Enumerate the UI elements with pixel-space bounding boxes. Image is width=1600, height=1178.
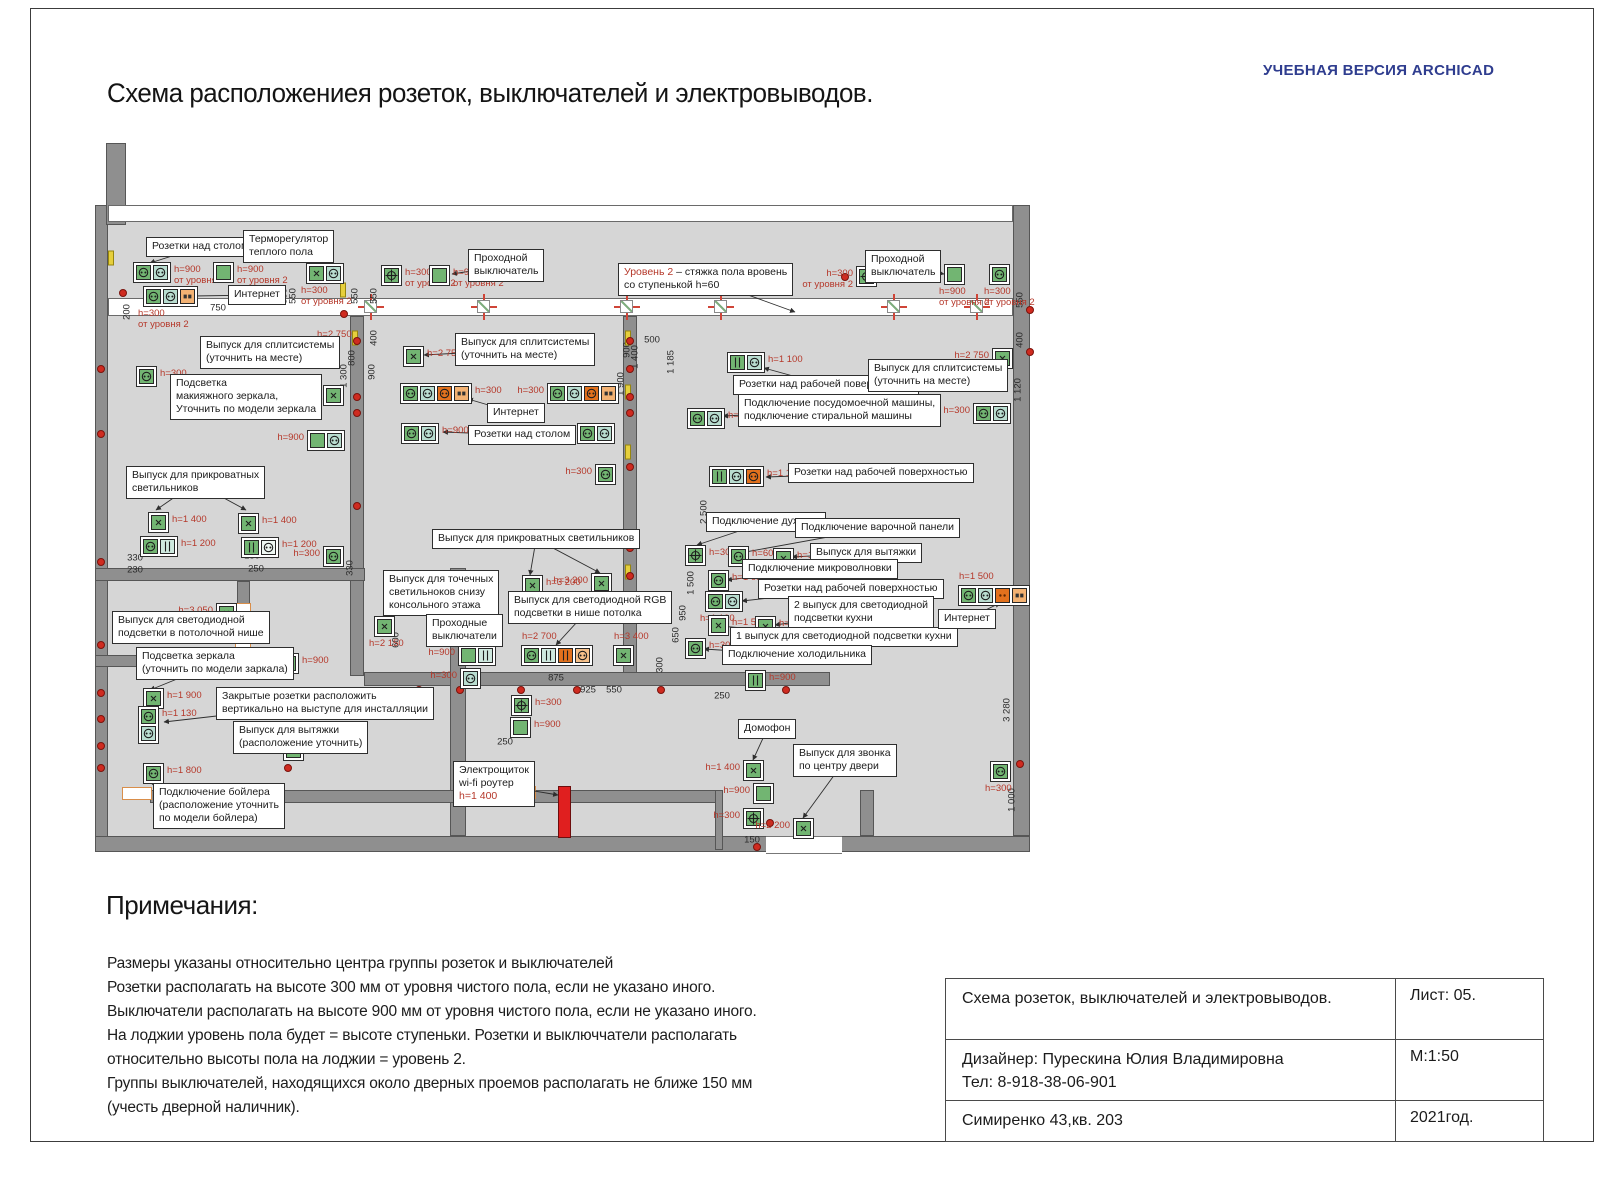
- height-label: h=300от уровня 2: [301, 286, 352, 308]
- height-label: h=900от уровня 2: [237, 265, 288, 287]
- height-label: h=2 150: [369, 639, 404, 650]
- cable-tick: [108, 251, 114, 266]
- switch2-symbol: [730, 355, 745, 370]
- socket-group: h=300: [973, 403, 1011, 424]
- dimension-text: 400: [369, 330, 380, 346]
- socket-symbol: [404, 426, 419, 441]
- socket2-symbol: [747, 355, 762, 370]
- dimension-text: 250: [714, 691, 730, 702]
- socket-group: h=300: [687, 408, 725, 429]
- dimension-text: 1 120: [1013, 378, 1024, 402]
- height-label: h=900: [302, 656, 329, 667]
- height-label: h=300от уровня 2: [802, 269, 853, 291]
- socket-symbol: [993, 764, 1008, 779]
- dimension-text: 500: [644, 335, 660, 346]
- junction-dot: [97, 742, 105, 750]
- socket-symbol: [146, 766, 161, 781]
- socket-group: h=300: [136, 366, 157, 387]
- height-label: h=900: [442, 426, 469, 437]
- out-symbol: [711, 618, 726, 633]
- junction-dot: [97, 715, 105, 723]
- socket-symbol: [143, 539, 158, 554]
- socket2-symbol: [978, 588, 993, 603]
- junction-dot: [626, 337, 634, 345]
- out-symbol: [616, 648, 631, 663]
- socket-w-symbol: [261, 540, 276, 555]
- socket-group: h=1 100: [727, 352, 765, 373]
- socket-group: h=1 200: [140, 536, 178, 557]
- socket2-symbol: [421, 426, 436, 441]
- junction-dot: [97, 641, 105, 649]
- socket-group: h=900от уровня 2: [213, 262, 234, 283]
- height-label: h=900: [534, 720, 561, 731]
- dimension-text: 1 500: [686, 571, 697, 595]
- socket-group: h=300: [595, 464, 616, 485]
- dimension-text: 550: [606, 685, 622, 696]
- socket2-symbol: [326, 266, 341, 281]
- dimension-text: 200: [122, 304, 133, 320]
- switch-symbol: [432, 268, 447, 283]
- callout-label: Подключение варочной панели: [795, 518, 960, 538]
- callout-label: Выпуск для вытяжки(расположение уточнить…: [233, 721, 368, 754]
- dimension-text: 900: [367, 364, 378, 380]
- socket-group: h=900от уровня 2: [429, 265, 450, 286]
- socket2-symbol: [567, 386, 582, 401]
- junction-dot: [97, 689, 105, 697]
- junction-dot: [517, 686, 525, 694]
- socket-group: h=300от уровня 2: [143, 286, 198, 307]
- socket-o-symbol: [746, 469, 761, 484]
- junction-symbol: [384, 268, 399, 283]
- socket-group: h=2 750: [403, 346, 424, 367]
- callout-label: Розетки над столом: [468, 425, 576, 445]
- net-symbol: [601, 386, 616, 401]
- switch2-symbol: [244, 540, 259, 555]
- socket-group: h=3 400: [613, 645, 634, 666]
- socket2-symbol: [420, 386, 435, 401]
- height-label: h=900: [277, 433, 304, 444]
- callout-label: Интернет: [228, 285, 286, 305]
- net-o-symbol: [995, 588, 1010, 603]
- net-symbol: [1012, 588, 1027, 603]
- height-label: h=300: [985, 784, 1012, 795]
- socket-group: h=300от уровня 2: [381, 265, 402, 286]
- junction-dot: [353, 409, 361, 417]
- height-label: h=1 400: [172, 515, 207, 526]
- junction-dot: [1026, 348, 1034, 356]
- out-symbol: [146, 691, 161, 706]
- junction-symbol: [514, 698, 529, 713]
- callout-label: Подсветкамакияжного зеркала,Уточнить по …: [170, 374, 322, 420]
- socket-o-symbol: [437, 386, 452, 401]
- socket-group: h=1 130: [138, 706, 159, 744]
- dimension-text: 230: [127, 565, 143, 576]
- socket-group: h=1 200: [241, 537, 279, 558]
- dimension-text: 250: [248, 564, 264, 575]
- callout-label: Электрощитокwi-fi роутерh=1 400: [453, 761, 535, 807]
- height-label: h=1 800: [167, 766, 202, 777]
- socket-group: h=900: [753, 783, 774, 804]
- net-symbol: [454, 386, 469, 401]
- dimension-text: 550: [369, 288, 380, 304]
- socket-symbol: [708, 594, 723, 609]
- switch-symbol: [947, 267, 962, 282]
- socket-group: h=1 800: [143, 763, 164, 784]
- socket-group: h=900: [401, 423, 439, 444]
- height-label: h=1 400: [705, 763, 740, 774]
- dimension-text: 400: [1015, 332, 1026, 348]
- height-label: h=1 200: [181, 539, 216, 550]
- socket-symbol: [550, 386, 565, 401]
- callout-label: Выпуск для прикроватных светильников: [432, 529, 640, 549]
- junction-dot: [97, 764, 105, 772]
- socket2-symbol: [725, 594, 740, 609]
- junction-dot: [782, 686, 790, 694]
- socket-symbol: [711, 573, 726, 588]
- dimension-text: 1 185: [666, 350, 677, 374]
- height-label: h=300: [293, 549, 320, 560]
- window-mark: [614, 294, 640, 320]
- junction-dot: [753, 843, 761, 851]
- socket-group: h=2 200: [793, 818, 814, 839]
- junction-dot: [626, 409, 634, 417]
- switch-symbol: [513, 720, 528, 735]
- junction-dot: [119, 289, 127, 297]
- switch-symbol: [461, 648, 476, 663]
- out-symbol: [746, 763, 761, 778]
- callout-label: Проходнойвыключатель: [468, 249, 544, 282]
- height-label: h=300от уровня 2: [984, 287, 1035, 309]
- height-label: h=3 200: [553, 576, 588, 587]
- junction-dot: [573, 686, 581, 694]
- height-label: h=3 400: [614, 632, 649, 643]
- callout-label: Выпуск для звонкапо центру двери: [793, 744, 897, 777]
- socket-symbol: [690, 411, 705, 426]
- callout-label: Интернет: [487, 403, 545, 423]
- socket-group: h=1 400: [148, 512, 169, 533]
- height-label: h=300от уровня 2: [138, 309, 189, 331]
- socket-group: h=900: [307, 430, 345, 451]
- height-label: h=2 700: [522, 632, 557, 643]
- height-label: h=300: [430, 671, 457, 682]
- callout-label: Розетки над рабочей поверхностью: [788, 463, 974, 483]
- callout-label: Выпуск для сплитсистемы(уточнить на мест…: [200, 336, 340, 369]
- socket-group: h=300от уровня 2: [306, 263, 344, 284]
- switch2-lt-symbol: [541, 648, 556, 663]
- height-label: h=300: [565, 467, 592, 478]
- socket-group: h=900от уровня 2: [133, 262, 171, 283]
- socket2-symbol: [597, 426, 612, 441]
- callout-label: 2 выпуск для светодиоднойподсветки кухни: [788, 596, 934, 629]
- dimension-text: 875: [548, 673, 564, 684]
- out-symbol: [594, 576, 609, 591]
- socket-o-lt-symbol: [575, 648, 590, 663]
- junction-dot: [1016, 760, 1024, 768]
- socket-group: h=300: [990, 761, 1011, 782]
- height-label: h=1 400: [262, 516, 297, 527]
- socket-symbol: [598, 467, 613, 482]
- callout-label: Проходныевыключатели: [426, 614, 503, 647]
- socket2-symbol: [463, 671, 478, 686]
- junction-dot: [353, 393, 361, 401]
- socket-group: h=900: [510, 717, 531, 738]
- switch-symbol: [216, 265, 231, 280]
- socket-symbol: [580, 426, 595, 441]
- socket-group: h=1 500: [958, 585, 1030, 606]
- junction-dot: [340, 310, 348, 318]
- out-symbol: [241, 516, 256, 531]
- socket-group: h=1 100: [705, 591, 743, 612]
- socket-group: h=900: [577, 423, 615, 444]
- socket-group: h=2 700: [521, 645, 593, 666]
- height-label: h=900: [769, 673, 796, 684]
- socket2-symbol: [993, 406, 1008, 421]
- socket-symbol: [961, 588, 976, 603]
- height-label: h=2 200: [755, 821, 790, 832]
- junction-dot: [626, 463, 634, 471]
- dimension-text: 650: [671, 627, 682, 643]
- switch2-lt-symbol: [160, 539, 175, 554]
- out-symbol: [406, 349, 421, 364]
- socket-symbol: [976, 406, 991, 421]
- socket2-symbol: [141, 726, 156, 741]
- height-label: h=900: [723, 786, 750, 797]
- net-symbol: [180, 289, 195, 304]
- out-symbol: [309, 266, 324, 281]
- socket-group: h=900от уровня 2: [944, 264, 965, 285]
- height-label: h=1 900: [167, 691, 202, 702]
- callout-label: Выпуск для сплитсистемы(уточнить на мест…: [455, 333, 595, 366]
- junction-dot: [353, 337, 361, 345]
- socket-symbol: [326, 549, 341, 564]
- socket-group: h=300: [460, 668, 481, 689]
- dimension-text: 3 280: [1002, 698, 1013, 722]
- callout-label: Уровень 2 – стяжка пола вровеньсо ступен…: [618, 263, 793, 296]
- socket-symbol: [136, 265, 151, 280]
- socket-symbol: [524, 648, 539, 663]
- socket-symbol: [141, 709, 156, 724]
- socket2-symbol: [163, 289, 178, 304]
- socket-group: h=300: [685, 545, 706, 566]
- callout-label: Подключение посудомоечной машины,подключ…: [738, 394, 941, 427]
- socket-group: h=1 650: [708, 570, 729, 591]
- dimension-text: 330: [345, 560, 356, 576]
- height-label: h=1 500: [959, 572, 994, 583]
- out-symbol: [796, 821, 811, 836]
- socket-group: h=900: [458, 645, 496, 666]
- height-label: h=1 130: [162, 709, 197, 720]
- callout-label: Подключение холодильника: [722, 645, 872, 665]
- socket-group: h=300: [547, 383, 619, 404]
- callout-label: Выпуск для точечныхсветильноков снизукон…: [383, 570, 499, 616]
- window-mark: [708, 294, 734, 320]
- socket-group: h=1 550: [708, 615, 729, 636]
- socket2-symbol: [327, 433, 342, 448]
- callout-label: Терморегулятортеплого пола: [243, 230, 334, 263]
- junction-dot: [353, 502, 361, 510]
- socket-symbol: [146, 289, 161, 304]
- cable-tick: [625, 445, 631, 460]
- dimension-text: 950: [678, 605, 689, 621]
- switch2-symbol: [748, 673, 763, 688]
- dimension-text: 550: [288, 288, 299, 304]
- socket-group: h=1 400: [743, 760, 764, 781]
- callout-label: Домофон: [738, 719, 796, 739]
- socket-group: h=900: [745, 670, 766, 691]
- socket-group: h=300: [511, 695, 532, 716]
- callout-label: Подключение микроволновки: [742, 559, 898, 579]
- dimension-text: 750: [210, 303, 226, 314]
- callout-label: Выпуск для светодиоднойподсветки в потол…: [112, 611, 270, 644]
- callout-label: Интернет: [938, 609, 996, 629]
- callout-label: Проходнойвыключатель: [865, 250, 941, 283]
- callout-label: Выпуск для прикроватныхсветильников: [126, 466, 265, 499]
- socket-group: h=300: [685, 638, 706, 659]
- junction-dot: [97, 430, 105, 438]
- window-mark: [881, 294, 907, 320]
- callout-label: Выпуск для светодиодной RGBподсветки в н…: [508, 591, 672, 624]
- dimension-text: 300: [655, 657, 666, 673]
- out-symbol: [377, 619, 392, 634]
- junction-dot: [284, 764, 292, 772]
- window-mark: [471, 294, 497, 320]
- junction-dot: [626, 365, 634, 373]
- height-label: h=300: [475, 386, 502, 397]
- switch-symbol: [756, 786, 771, 801]
- socket2-symbol: [153, 265, 168, 280]
- socket2-symbol: [707, 411, 722, 426]
- out-symbol: [326, 388, 341, 403]
- switch2-o-symbol: [558, 648, 573, 663]
- junction-dot: [626, 393, 634, 401]
- socket-group: h=300от уровня 2: [989, 264, 1010, 285]
- callout-label: Выпуск для сплитсистемы(уточнить на мест…: [868, 359, 1008, 392]
- height-label: h=300: [517, 386, 544, 397]
- socket-symbol: [139, 369, 154, 384]
- callout-label: Закрытые розетки расположитьвертикально …: [216, 687, 434, 720]
- height-label: h=300: [713, 811, 740, 822]
- socket-group: h=300: [323, 546, 344, 567]
- out-symbol: [151, 515, 166, 530]
- callout-label: Розетки над столом: [146, 237, 254, 257]
- junction-dot: [626, 572, 634, 580]
- socket-group: h=2 150: [374, 616, 395, 637]
- height-label: h=1 100: [768, 355, 803, 366]
- switch2-lt-symbol: [478, 648, 493, 663]
- junction-dot: [657, 686, 665, 694]
- socket2-symbol: [729, 469, 744, 484]
- socket-symbol: [992, 267, 1007, 282]
- height-label: h=900от уровня 2: [939, 287, 990, 309]
- callout-label: Подключение бойлера(расположение уточнит…: [153, 783, 285, 829]
- socket-group: h=1 289: [323, 385, 344, 406]
- dimension-text: 925: [580, 685, 596, 696]
- callout-label: Подсветка зеркала(уточнить по модели зар…: [136, 647, 294, 680]
- height-label: h=300: [535, 698, 562, 709]
- socket-symbol: [688, 641, 703, 656]
- socket-group: h=1 100: [709, 466, 764, 487]
- switch-symbol: [310, 433, 325, 448]
- socket-symbol: [403, 386, 418, 401]
- socket-o-symbol: [584, 386, 599, 401]
- height-label: h=300: [943, 406, 970, 417]
- socket-group: h=1 400: [238, 513, 259, 534]
- junction-dot: [97, 558, 105, 566]
- junction-symbol: [688, 548, 703, 563]
- socket-group: h=300: [400, 383, 472, 404]
- dimension-text: 250: [497, 737, 513, 748]
- height-label: h=900: [428, 648, 455, 659]
- floor-plan: 5505505505505504004009008001 3002009001 …: [0, 0, 1600, 1178]
- junction-dot: [97, 365, 105, 373]
- switch2-symbol: [712, 469, 727, 484]
